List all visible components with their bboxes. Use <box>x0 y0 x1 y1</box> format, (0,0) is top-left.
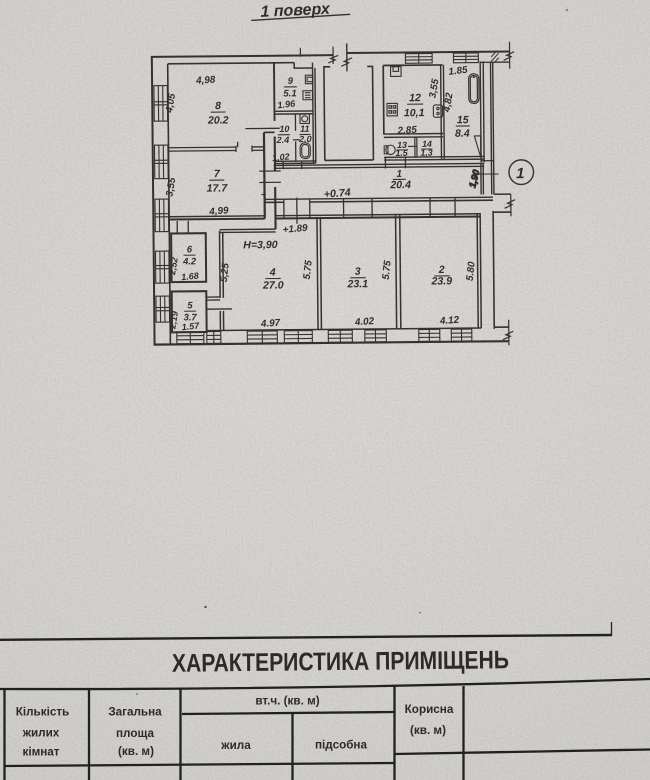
svg-text:5,25: 5,25 <box>219 262 232 283</box>
svg-text:H=3,90: H=3,90 <box>243 239 278 251</box>
svg-text:4: 4 <box>269 267 276 279</box>
svg-text:2: 2 <box>438 264 445 276</box>
svg-text:6: 6 <box>187 243 193 254</box>
svg-text:1,3: 1,3 <box>420 148 432 158</box>
svg-text:жилих: жилих <box>22 727 60 740</box>
svg-text:(кв. м): (кв. м) <box>410 724 446 737</box>
svg-text:5.1: 5.1 <box>283 88 296 99</box>
svg-text:5.80: 5.80 <box>465 261 478 282</box>
svg-text:5: 5 <box>187 299 193 310</box>
svg-text:4.02: 4.02 <box>354 316 375 328</box>
svg-text:20.4: 20.4 <box>389 179 411 191</box>
svg-text:ХАРАКТЕРИСТИКА ПРИМІЩЕНЬ: ХАРАКТЕРИСТИКА ПРИМІЩЕНЬ <box>172 646 509 678</box>
svg-text:+0.74: +0.74 <box>323 187 351 201</box>
svg-text:2.4: 2.4 <box>276 135 290 145</box>
svg-text:2.85: 2.85 <box>396 125 417 137</box>
svg-text:4.97: 4.97 <box>260 318 281 330</box>
svg-text:3: 3 <box>355 266 361 278</box>
svg-text:4.12: 4.12 <box>439 315 460 327</box>
svg-text:23.9: 23.9 <box>430 275 452 287</box>
svg-text:5.75: 5.75 <box>302 259 315 280</box>
svg-text:12: 12 <box>409 92 421 104</box>
svg-text:Корисна: Корисна <box>405 703 454 716</box>
svg-text:вт.ч. (кв. м): вт.ч. (кв. м) <box>255 695 319 708</box>
svg-text:4,98: 4,98 <box>195 75 216 87</box>
svg-text:10: 10 <box>279 124 289 134</box>
svg-text:27.0: 27.0 <box>262 279 284 291</box>
svg-text:8: 8 <box>215 100 221 112</box>
svg-text:9: 9 <box>288 75 294 86</box>
svg-text:1.96: 1.96 <box>277 98 297 110</box>
svg-text:4.2: 4.2 <box>182 255 197 266</box>
svg-text:8.4: 8.4 <box>455 128 470 140</box>
svg-text:23.1: 23.1 <box>346 278 368 290</box>
svg-text:площа: площа <box>116 727 154 740</box>
svg-text:17.7: 17.7 <box>207 182 229 194</box>
svg-text:Кількість: Кількість <box>16 706 70 719</box>
svg-text:20.2: 20.2 <box>207 114 229 126</box>
svg-text:кімнат: кімнат <box>22 746 59 759</box>
svg-text:+1.89: +1.89 <box>282 223 308 236</box>
svg-text:1.5: 1.5 <box>395 148 407 158</box>
svg-text:1.57: 1.57 <box>181 320 200 332</box>
svg-text:11: 11 <box>300 124 309 134</box>
svg-text:підсобна: підсобна <box>315 739 367 752</box>
svg-text:10,1: 10,1 <box>404 107 425 119</box>
svg-text:1.68: 1.68 <box>181 271 199 283</box>
svg-text:1: 1 <box>516 165 525 182</box>
svg-text:15: 15 <box>457 114 470 126</box>
svg-text:5.75: 5.75 <box>381 259 394 280</box>
svg-text:жила: жила <box>220 739 251 752</box>
svg-text:(кв. м): (кв. м) <box>118 745 154 758</box>
svg-text:1.85: 1.85 <box>448 65 469 78</box>
svg-text:Загальна: Загальна <box>108 706 162 719</box>
